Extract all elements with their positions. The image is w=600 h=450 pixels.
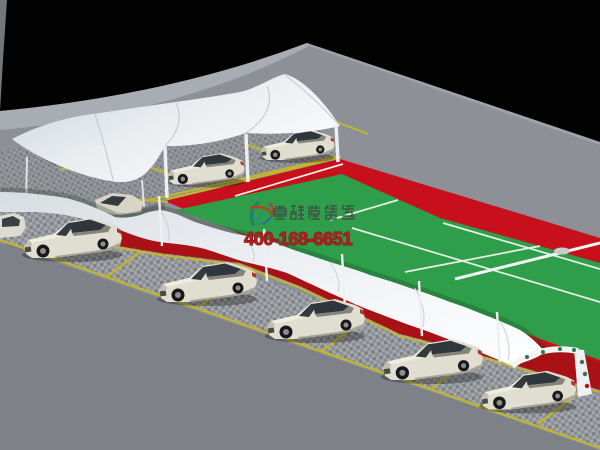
svg-text:400-168-6651: 400-168-6651 — [244, 228, 352, 249]
